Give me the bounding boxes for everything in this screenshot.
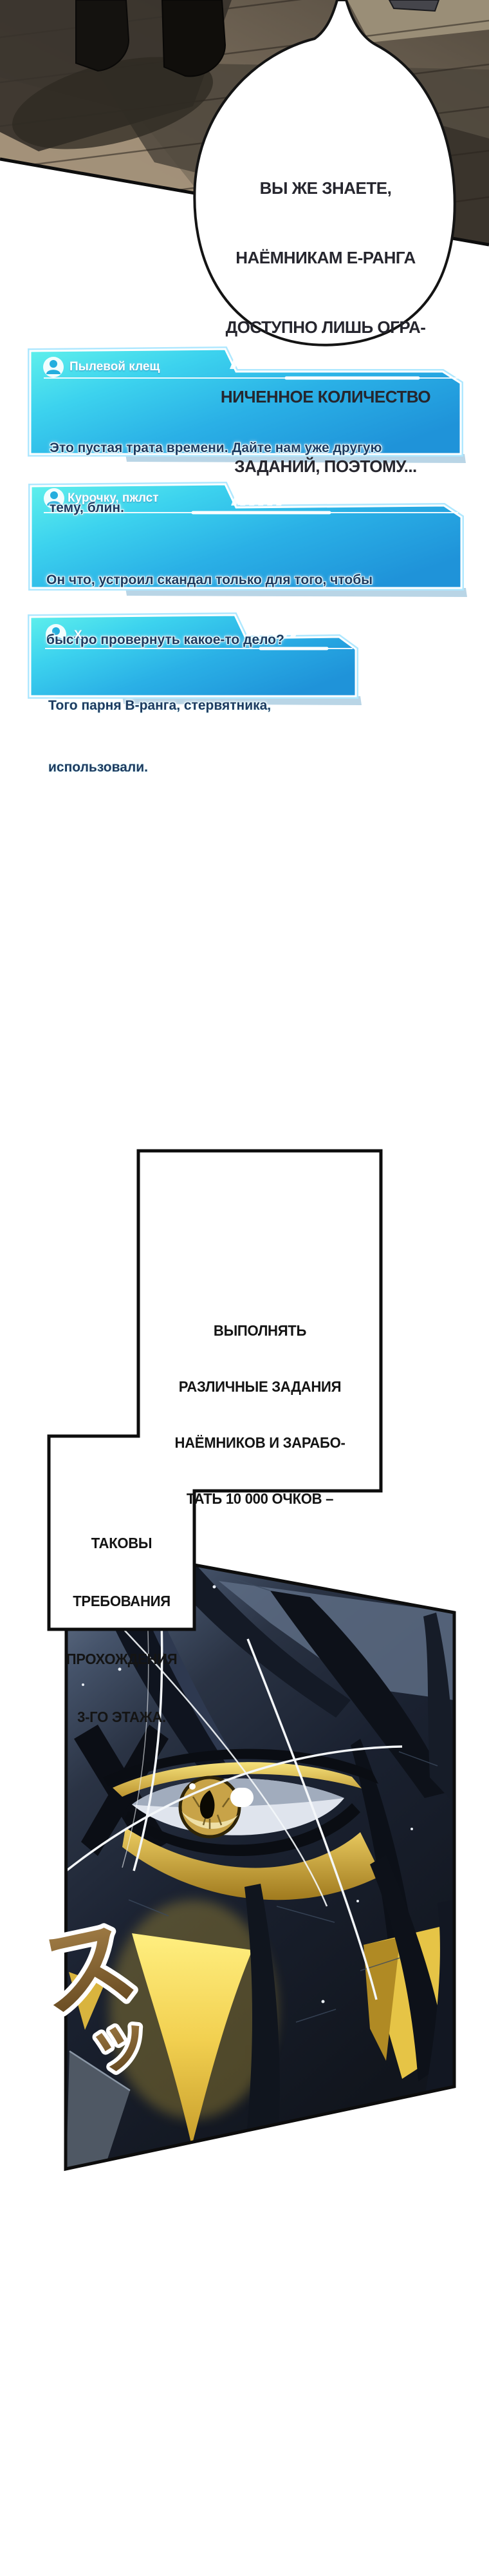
chat-message-line: Он что, устроил скандал только для того,… [46,570,373,590]
caption-line: ПРОХОЖДЕНИЯ [53,1649,189,1669]
chat-box-1-tab [33,345,132,346]
caption-line: ТРЕБОВАНИЯ [53,1591,189,1611]
caption-line: ТАКОВЫ [53,1533,189,1553]
eye-glint-small [189,1783,196,1790]
caption-box-1-text: ВЫПОЛНЯТЬ РАЗЛИЧНЫЕ ЗАДАНИЯ НАЁМНИКОВ И … [167,1284,353,1527]
chat-message-line: использовали. [48,757,271,778]
caption-line: РАЗЛИЧНЫЕ ЗАДАНИЯ [167,1378,353,1396]
chat-message-line: Это пустая трата времени. Дайте нам уже … [50,438,382,458]
bubble-line: ДОСТУПНО ЛИШЬ ОГРА- [216,316,435,339]
chat-3-username: X [74,629,82,643]
webtoon-page: ス ッ ВЫ ЖЕ ЗНАЕТЕ, НАЁМНИКАМ Е-РАНГА ДОСТ… [0,0,489,2576]
caption-line: ТАТЬ 10 000 ОЧКОВ – [167,1490,353,1508]
boot-left [76,0,129,71]
chat-2-username: Курочку, пжлст [68,491,159,506]
caption-box-2-text: ТАКОВЫ ТРЕБОВАНИЯ ПРОХОЖДЕНИЯ 3-ГО ЭТАЖА… [53,1495,189,1746]
chat-1-username: Пылевой клещ [69,360,160,374]
chat-message-line: Того парня В-ранга, стервятника, [48,696,271,716]
boot-right [162,0,225,76]
chat-message-line: быстро провернуть какое-то дело? [46,630,373,650]
user-avatar-icon [43,357,64,377]
caption-line: ВЫПОЛНЯТЬ [167,1321,353,1340]
bubble-line: ВЫ ЖЕ ЗНАЕТЕ, [216,176,435,200]
chat-3-message: Того парня В-ранга, стервятника, использ… [48,654,271,799]
caption-line: 3-ГО ЭТАЖА. [53,1707,189,1727]
bubble-line: НАЁМНИКАМ Е-РАНГА [216,246,435,269]
eye-glint-large [230,1788,254,1807]
caption-line: НАЁМНИКОВ И ЗАРАБО- [167,1434,353,1452]
chat-1-message: Это пустая трата времени. Дайте нам уже … [50,398,382,538]
chat-2-message: Он что, устроил скандал только для того,… [46,530,373,670]
